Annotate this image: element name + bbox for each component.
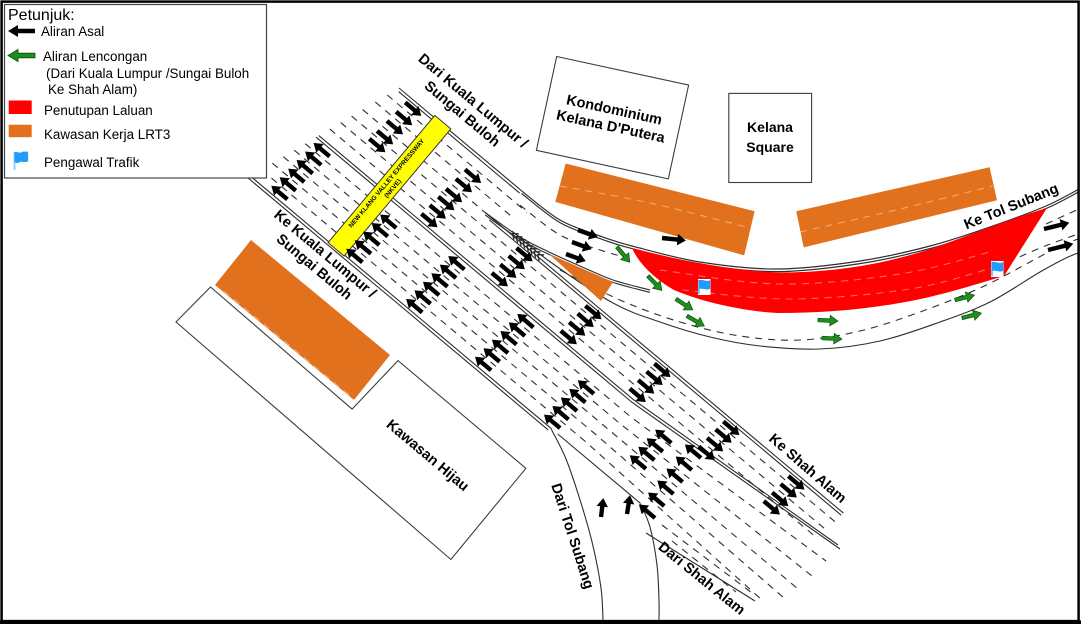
svg-text:Penutupan Laluan: Penutupan Laluan <box>44 103 153 118</box>
svg-text:Aliran Asal: Aliran Asal <box>41 24 104 39</box>
svg-text:(Dari Kuala Lumpur /Sungai Bul: (Dari Kuala Lumpur /Sungai Buloh <box>46 66 249 81</box>
svg-text:Ke Shah Alam): Ke Shah Alam) <box>48 82 137 97</box>
svg-text:Pengawal Trafik: Pengawal Trafik <box>44 155 140 170</box>
svg-text:Aliran Lencongan: Aliran Lencongan <box>43 49 147 64</box>
svg-text:Petunjuk:: Petunjuk: <box>8 7 75 24</box>
svg-text:Kelana: Kelana <box>747 119 793 135</box>
svg-text:Square: Square <box>746 139 794 155</box>
svg-text:Kawasan Kerja LRT3: Kawasan Kerja LRT3 <box>44 127 170 142</box>
